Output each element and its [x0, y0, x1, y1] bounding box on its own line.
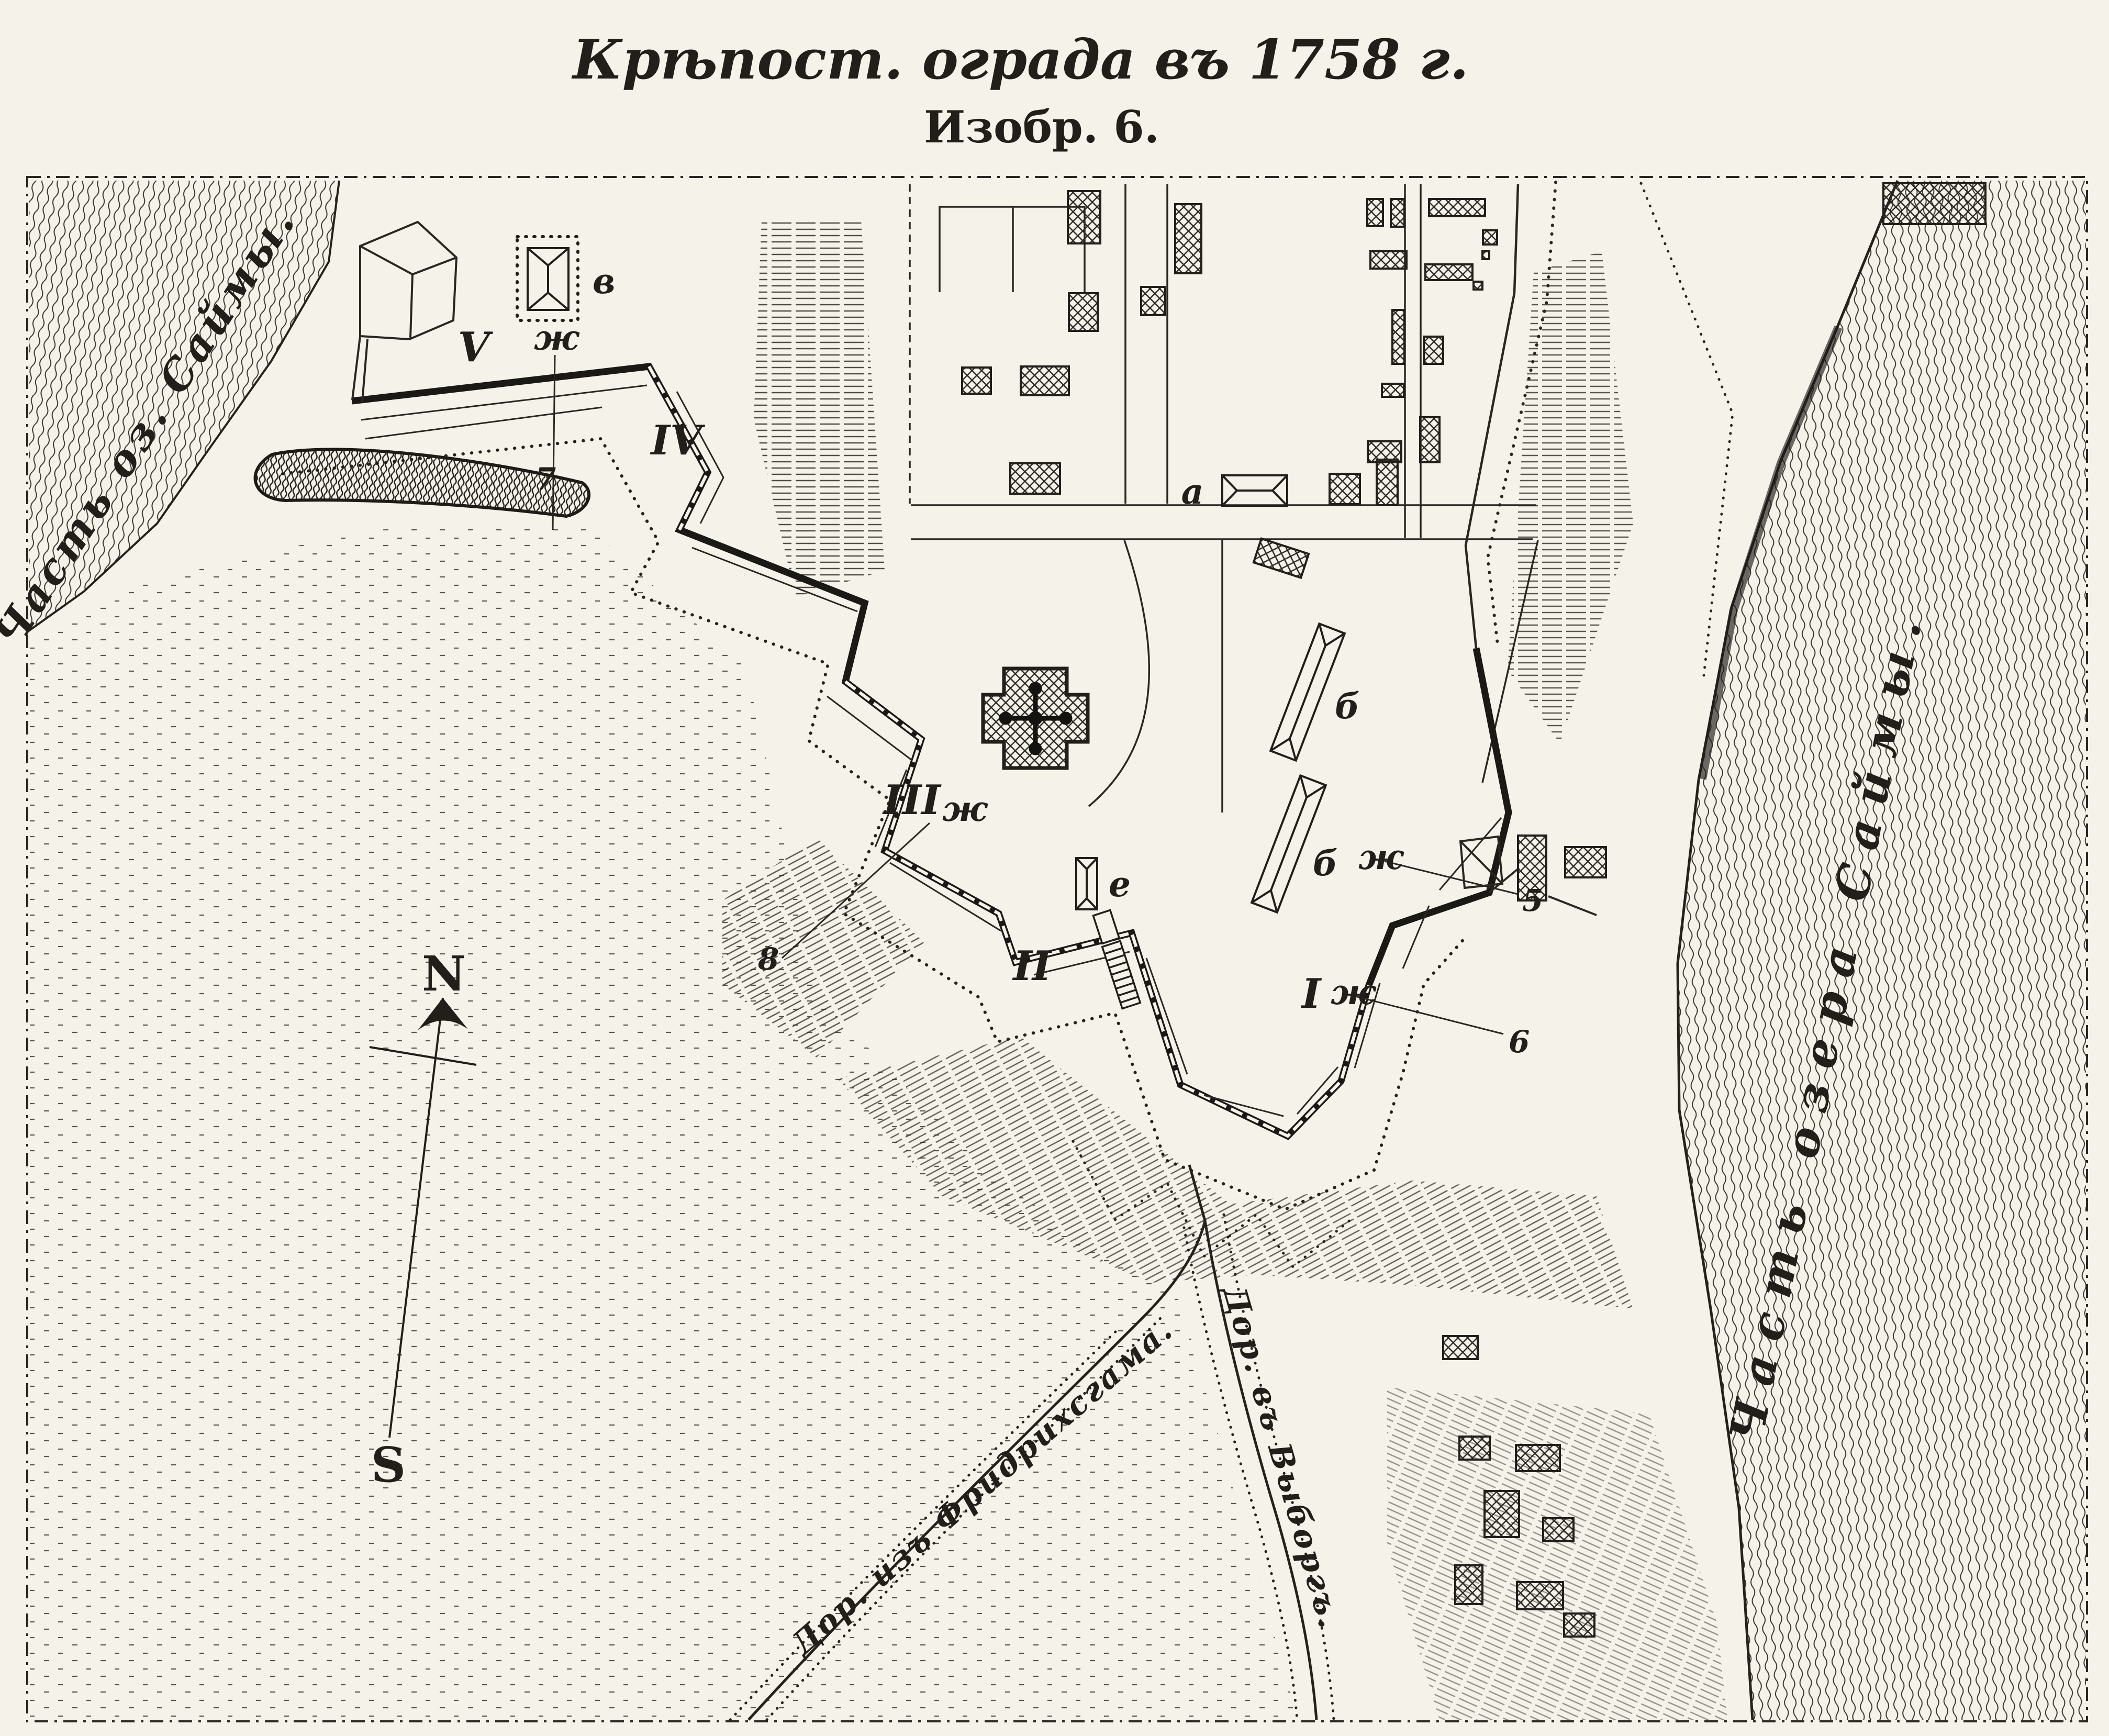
building-hatched [1368, 441, 1401, 462]
building-hatched [1367, 199, 1383, 226]
shore-hachure-southeast [1387, 1387, 1727, 1720]
bastion-label-2: II [1012, 942, 1053, 990]
figure-caption: Изобр. 6. [924, 101, 1159, 153]
building-hatched [1392, 310, 1404, 364]
bastion-label-1: I [1301, 970, 1322, 1018]
building-e [1076, 858, 1097, 909]
town-rampart-east [1466, 184, 1518, 648]
town-compound-outline [940, 207, 1085, 292]
east-battery-hatched [1565, 847, 1606, 877]
building-hatched [1425, 264, 1472, 280]
building-hatched [1330, 474, 1360, 504]
scanned-map-page: N S Крѣпост. ограда въ 1758 г. Изобр. 6.… [0, 0, 2109, 1736]
building-hatched [1443, 1336, 1478, 1359]
building-hatched [1370, 251, 1407, 269]
building-hatched [1517, 1582, 1563, 1609]
lake-saimaa-east-water [1678, 181, 2086, 1720]
building-label-b-lower: б [1313, 843, 1338, 884]
building-a [1222, 475, 1287, 506]
well-marker-zh4: ж [1331, 972, 1377, 1012]
point-number-7: 7 [535, 461, 556, 497]
street-horizontal [911, 505, 1536, 539]
storehouse-v-outline [352, 222, 456, 402]
building-hatched [1010, 463, 1060, 494]
street-vertical-1 [1125, 184, 1167, 504]
building-hatched [1459, 1437, 1490, 1460]
fortress-map-1758: N S Крѣпост. ограда въ 1758 г. Изобр. 6.… [0, 0, 2109, 1736]
building-hatched [1382, 384, 1404, 397]
building-hatched [1483, 230, 1497, 244]
building-label-e: е [1109, 864, 1131, 905]
bastion-label-3: III [882, 776, 942, 824]
building-label-v: в [593, 261, 615, 302]
bastion-label-5: V [458, 324, 494, 371]
powder-magazine-building [528, 248, 568, 310]
point-number-6: 6 [1509, 1024, 1530, 1060]
building-hatched [1377, 460, 1398, 505]
building-hatched [1175, 204, 1201, 273]
shore-pier [1883, 183, 1985, 224]
building-hatched [1068, 191, 1100, 243]
glacis-hachure-east-beach [1508, 251, 1633, 743]
building-hatched [1141, 287, 1165, 315]
building-hatched [962, 368, 991, 394]
building-hatched [1069, 293, 1098, 331]
barracks-b-upper [1270, 624, 1345, 760]
building-hatched [1543, 1518, 1574, 1541]
building-hatched [1391, 199, 1404, 227]
bastion-label-4: IV [650, 417, 705, 464]
building-hatched [1420, 417, 1440, 462]
well-marker-zh1: ж [534, 317, 580, 358]
well-marker-zh3: ж [1358, 837, 1404, 877]
building-hatched [1424, 337, 1443, 364]
building-hatched [1564, 1613, 1594, 1637]
map-title: Крѣпост. ограда въ 1758 г. [571, 27, 1469, 92]
building-hatched [1455, 1565, 1482, 1604]
guardhouse-diagonal [1254, 539, 1309, 578]
compass-south-label: S [371, 1437, 406, 1493]
building-hatched [1516, 1445, 1560, 1471]
building-label-b-upper: б [1335, 686, 1360, 727]
glacis-hachure-east-of-front [754, 220, 885, 597]
church-square-curve [1089, 540, 1149, 806]
point-number-8: 8 [757, 941, 779, 977]
point-number-5: 5 [1522, 883, 1543, 918]
well-marker-zh2: ж [942, 788, 988, 829]
street-vertical-2 [1405, 184, 1421, 538]
building-hatched [1482, 251, 1489, 259]
shore-path-dotted [1641, 183, 1733, 675]
compass-north-label: N [422, 945, 466, 1002]
building-hatched [1429, 199, 1485, 216]
building-hatched [1021, 366, 1069, 395]
building-hatched [1485, 1491, 1519, 1537]
building-hatched [1474, 282, 1482, 290]
building-label-a: а [1181, 471, 1204, 512]
